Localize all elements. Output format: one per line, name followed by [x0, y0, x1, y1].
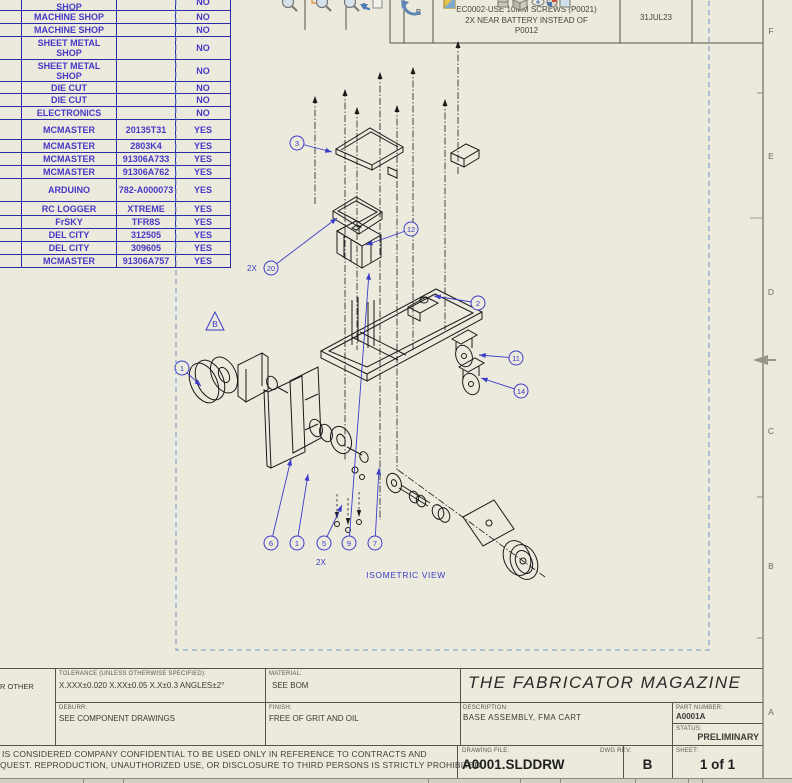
zone-tick: [123, 779, 124, 783]
bom-cell: [0, 229, 22, 241]
bom-cell: NO: [176, 60, 231, 81]
bom-row: MACHINE SHOPNO: [0, 11, 231, 24]
bom-cell: 312505: [117, 229, 176, 241]
bom-row: MCMASTER2803K4YES: [0, 140, 231, 153]
bom-cell: MCMASTER: [22, 120, 117, 139]
revision-description-line: P0012: [435, 26, 618, 37]
bom-row: SHEET METAL SHOPNO: [0, 0, 231, 11]
deburr-label: DEBURR:: [59, 705, 87, 711]
bom-cell: YES: [176, 120, 231, 139]
bom-cell: 91306A757: [117, 255, 176, 267]
confidential-line-2: QUEST. REPRODUCTION, UNAUTHORIZED USE, O…: [0, 760, 484, 770]
bom-cell: [0, 179, 22, 201]
bom-cell: ARDUINO: [22, 179, 117, 201]
bom-cell: 2803K4: [117, 140, 176, 152]
bom-cell: 20135T31: [117, 120, 176, 139]
bom-cell: MACHINE SHOP: [22, 24, 117, 36]
titleblock-line: [672, 723, 763, 724]
bom-row: ELECTRONICSNO: [0, 107, 231, 120]
bom-table: SHEET METAL SHOPNOMACHINE SHOPNOMACHINE …: [0, 0, 231, 268]
bom-cell: SHEET METAL SHOP: [22, 0, 117, 10]
bom-cell: [0, 82, 22, 93]
bom-row: MCMASTER91306A757YES: [0, 255, 231, 268]
bom-cell: [0, 11, 22, 23]
bom-cell: SHEET METAL SHOP: [22, 60, 117, 81]
bom-cell: [117, 37, 176, 59]
bom-cell: [0, 24, 22, 36]
bom-cell: [0, 166, 22, 178]
bom-cell: MCMASTER: [22, 255, 117, 267]
zone-tick: [635, 779, 636, 783]
bom-cell: 309605: [117, 242, 176, 254]
dwg-rev-label: DWG REV:: [600, 748, 620, 754]
bom-row: DEL CITY312505YES: [0, 229, 231, 242]
bom-cell: MCMASTER: [22, 140, 117, 152]
material-label: MATERIAL:: [269, 671, 302, 677]
drawing-file-label: DRAWING FILE:: [462, 748, 509, 754]
bom-cell: [0, 202, 22, 215]
bom-cell: YES: [176, 202, 231, 215]
status-value: PRELIMINARY: [672, 732, 759, 742]
bom-cell: [0, 120, 22, 139]
bom-row: SHEET METAL SHOPNO: [0, 60, 231, 82]
bom-cell: NO: [176, 82, 231, 93]
part-number-label: PART NUMBER:: [676, 705, 723, 711]
bom-cell: MACHINE SHOP: [22, 11, 117, 23]
bom-row: MACHINE SHOPNO: [0, 24, 231, 37]
bom-row: SHEET METAL SHOPNO: [0, 37, 231, 60]
bom-cell: [0, 107, 22, 119]
bom-cell: [0, 255, 22, 267]
deburr-value: SEE COMPONENT DRAWINGS: [59, 714, 175, 723]
bom-cell: [0, 153, 22, 165]
bom-cell: [117, 60, 176, 81]
bom-cell: 782-A000073: [117, 179, 176, 201]
bom-cell: [0, 140, 22, 152]
bom-cell: [0, 0, 22, 10]
bom-cell: [0, 37, 22, 59]
tolerance-value: X.XXX±0.020 X.XX±0.05 X.X±0.3 ANGLES±2°: [59, 681, 224, 690]
revision-rev: B: [404, 8, 433, 19]
titleblock-line: [0, 745, 763, 746]
bom-cell: YES: [176, 242, 231, 254]
titleblock-line: [55, 702, 763, 703]
bom-cell: XTREME: [117, 202, 176, 215]
bom-cell: [0, 94, 22, 106]
sheet-value: 1 of 1: [672, 757, 763, 772]
dwg-rev-value: B: [623, 757, 672, 772]
bom-row: FrSKYTFR8SYES: [0, 216, 231, 229]
titleblock-left-fragment: R OTHER: [0, 682, 34, 691]
bom-row: MCMASTER91306A733YES: [0, 153, 231, 166]
description-value: BASE ASSEMBLY, FMA CART: [463, 713, 582, 722]
bom-cell: DIE CUT: [22, 82, 117, 93]
bom-cell: [0, 60, 22, 81]
zone-tick: [688, 779, 689, 783]
tolerance-label: TOLERANCE (UNLESS OTHERWISE SPECIFIED):: [59, 671, 206, 677]
bom-cell: [117, 0, 176, 10]
titleblock-line: [55, 668, 56, 746]
bom-cell: [0, 242, 22, 254]
revision-date: 31JUL23: [620, 13, 692, 24]
drawing-sheet: FEDCBA: [0, 0, 792, 783]
revision-description-line: EC0002-USE 10MM SCREWS (P0021): [435, 5, 618, 16]
bom-cell: NO: [176, 107, 231, 119]
bom-cell: NO: [176, 11, 231, 23]
bom-cell: YES: [176, 153, 231, 165]
bom-row: ARDUINO782-A000073YES: [0, 179, 231, 202]
bom-cell: YES: [176, 229, 231, 241]
revision-description-line: 2X NEAR BATTERY INSTEAD OF: [435, 16, 618, 27]
bom-cell: TFR8S: [117, 216, 176, 228]
bom-cell: SHEET METAL SHOP: [22, 37, 117, 59]
titleblock-line: [0, 668, 763, 669]
bom-cell: NO: [176, 0, 231, 10]
description-label: DESCRIPTION:: [463, 705, 508, 711]
bom-cell: DEL CITY: [22, 242, 117, 254]
zone-tick: [83, 779, 84, 783]
bom-cell: [117, 11, 176, 23]
bom-row: MCMASTER91306A762YES: [0, 166, 231, 179]
revision-description: EC0002-USE 10MM SCREWS (P0021)2X NEAR BA…: [435, 5, 618, 37]
bom-cell: DEL CITY: [22, 229, 117, 241]
titleblock-line: [265, 668, 266, 746]
bom-cell: NO: [176, 24, 231, 36]
bom-cell: YES: [176, 255, 231, 267]
part-number-value: A0001A: [676, 712, 705, 721]
finish-value: FREE OF GRIT AND OIL: [269, 714, 359, 723]
bom-cell: YES: [176, 166, 231, 178]
bom-cell: YES: [176, 216, 231, 228]
drawing-file-value: A0001.SLDDRW: [462, 757, 565, 772]
bom-cell: [0, 216, 22, 228]
bom-cell: FrSKY: [22, 216, 117, 228]
bom-row: MCMASTER20135T31YES: [0, 120, 231, 140]
zone-tick: [702, 779, 703, 783]
bom-cell: [117, 107, 176, 119]
bom-cell: MCMASTER: [22, 153, 117, 165]
zone-tick: [428, 779, 429, 783]
bom-cell: NO: [176, 37, 231, 59]
bom-cell: YES: [176, 179, 231, 201]
bom-cell: [117, 24, 176, 36]
bom-cell: 91306A733: [117, 153, 176, 165]
bom-cell: MCMASTER: [22, 166, 117, 178]
bom-row: DIE CUTNO: [0, 82, 231, 94]
company-name: THE FABRICATOR MAGAZINE: [468, 673, 741, 693]
sheet-label: SHEET:: [676, 748, 698, 754]
bom-cell: ELECTRONICS: [22, 107, 117, 119]
bom-cell: [117, 94, 176, 106]
zone-tick: [560, 779, 561, 783]
bom-cell: 91306A762: [117, 166, 176, 178]
titleblock-line: [460, 668, 461, 746]
bom-row: DIE CUTNO: [0, 94, 231, 107]
material-value: SEE BOM: [272, 681, 308, 690]
zone-tick: [520, 779, 521, 783]
sheet-html-layer: SHEET METAL SHOPNOMACHINE SHOPNOMACHINE …: [0, 0, 792, 783]
bom-cell: RC LOGGER: [22, 202, 117, 215]
bom-cell: DIE CUT: [22, 94, 117, 106]
bom-cell: NO: [176, 94, 231, 106]
bom-row: RC LOGGERXTREMEYES: [0, 202, 231, 216]
finish-label: FINISH:: [269, 705, 292, 711]
bottom-zone-strip: [0, 778, 792, 783]
bom-cell: [117, 82, 176, 93]
confidential-line-1: IS CONSIDERED COMPANY CONFIDENTIAL TO BE…: [2, 749, 427, 759]
bom-cell: YES: [176, 140, 231, 152]
bom-row: DEL CITY309605YES: [0, 242, 231, 255]
